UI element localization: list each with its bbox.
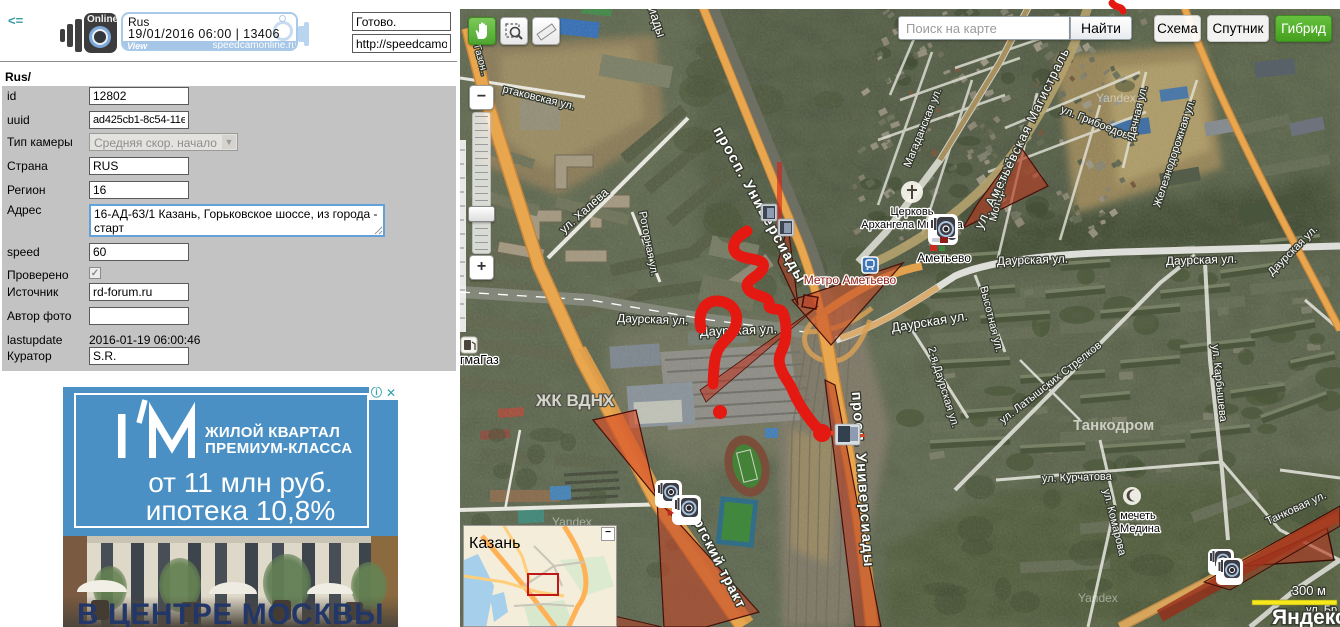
svg-text:мечеть: мечеть <box>1120 510 1156 522</box>
svg-text:Даурская ул.: Даурская ул. <box>617 311 689 327</box>
svg-text:Медина: Медина <box>1120 523 1161 535</box>
svg-text:Yandex: Yandex <box>1096 91 1136 105</box>
svg-text:Церковь: Церковь <box>890 206 933 218</box>
svg-text:Yandex: Yandex <box>1078 591 1118 605</box>
svg-text:Аметьево: Аметьево <box>917 251 971 265</box>
svg-text:Даурская ул.: Даурская ул. <box>997 252 1069 268</box>
svg-text:Метро Аметьево: Метро Аметьево <box>804 273 897 287</box>
svg-text:Танкодром: Танкодром <box>1073 417 1154 434</box>
svg-text:ЖК ВДНХ: ЖК ВДНХ <box>535 391 615 410</box>
svg-text:Даурская ул.: Даурская ул. <box>1166 252 1238 268</box>
svg-text:300 м: 300 м <box>1292 583 1326 598</box>
svg-text:Казань: Казань <box>469 535 520 552</box>
svg-text:Яндекс: Яндекс <box>1272 606 1340 627</box>
svg-text:гмаГаз: гмаГаз <box>460 353 499 367</box>
svg-text:ул. Курчатова: ул. Курчатова <box>1042 471 1113 485</box>
